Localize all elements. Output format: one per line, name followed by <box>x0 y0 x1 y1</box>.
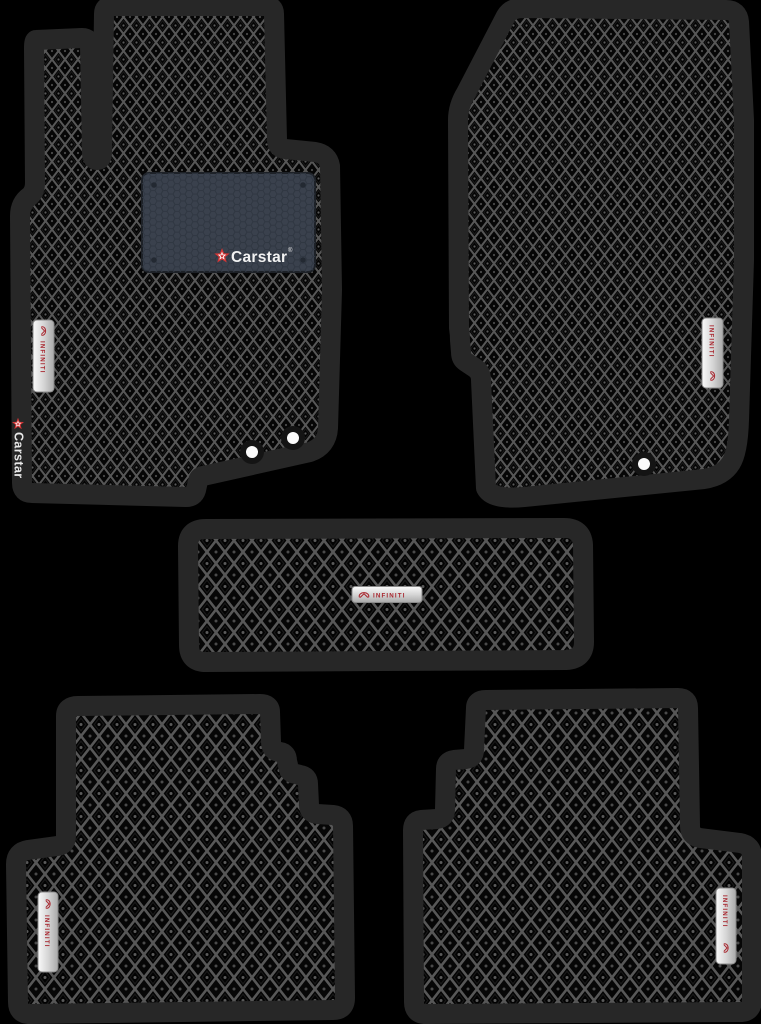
infiniti-badge-tunnel: INFINITI <box>352 587 422 603</box>
infiniti-badge-text: INFINITI <box>721 895 728 928</box>
mats-photo-svg: Carstar ® INFINITI Carstar INFINITI <box>0 0 761 1024</box>
infiniti-badge-passenger: INFINITI <box>702 318 723 388</box>
mat-front-passenger: INFINITI <box>458 8 744 498</box>
carstar-vertical-text: Carstar <box>12 432 26 479</box>
mat-tunnel: INFINITI <box>188 528 584 662</box>
infiniti-badge-text: INFINITI <box>43 915 50 948</box>
infiniti-badge-text: INFINITI <box>708 325 715 358</box>
heel-pad-screw <box>151 257 157 263</box>
infiniti-badge-rear-right: INFINITI <box>716 888 736 964</box>
carstar-reg-mark: ® <box>288 247 293 254</box>
mat-front-driver: Carstar ® INFINITI Carstar <box>12 6 333 497</box>
fixing-eyelet <box>632 452 656 476</box>
product-photo-canvas: Carstar ® INFINITI Carstar INFINITI <box>0 0 761 1024</box>
fixing-eyelet <box>240 440 264 464</box>
infiniti-badge-text: INFINITI <box>373 593 406 600</box>
heel-pad-screw <box>151 182 157 188</box>
infiniti-badge-text: INFINITI <box>39 341 46 374</box>
passenger-mat-body <box>458 8 744 498</box>
carstar-logo-text: Carstar <box>231 249 287 266</box>
infiniti-badge-driver: INFINITI <box>33 320 54 392</box>
fixing-eyelet <box>281 426 305 450</box>
heel-pad-screw <box>300 257 306 263</box>
heel-pad: Carstar ® <box>142 173 315 272</box>
infiniti-badge-rear-left: INFINITI <box>38 892 58 972</box>
heel-pad-screw <box>300 182 306 188</box>
